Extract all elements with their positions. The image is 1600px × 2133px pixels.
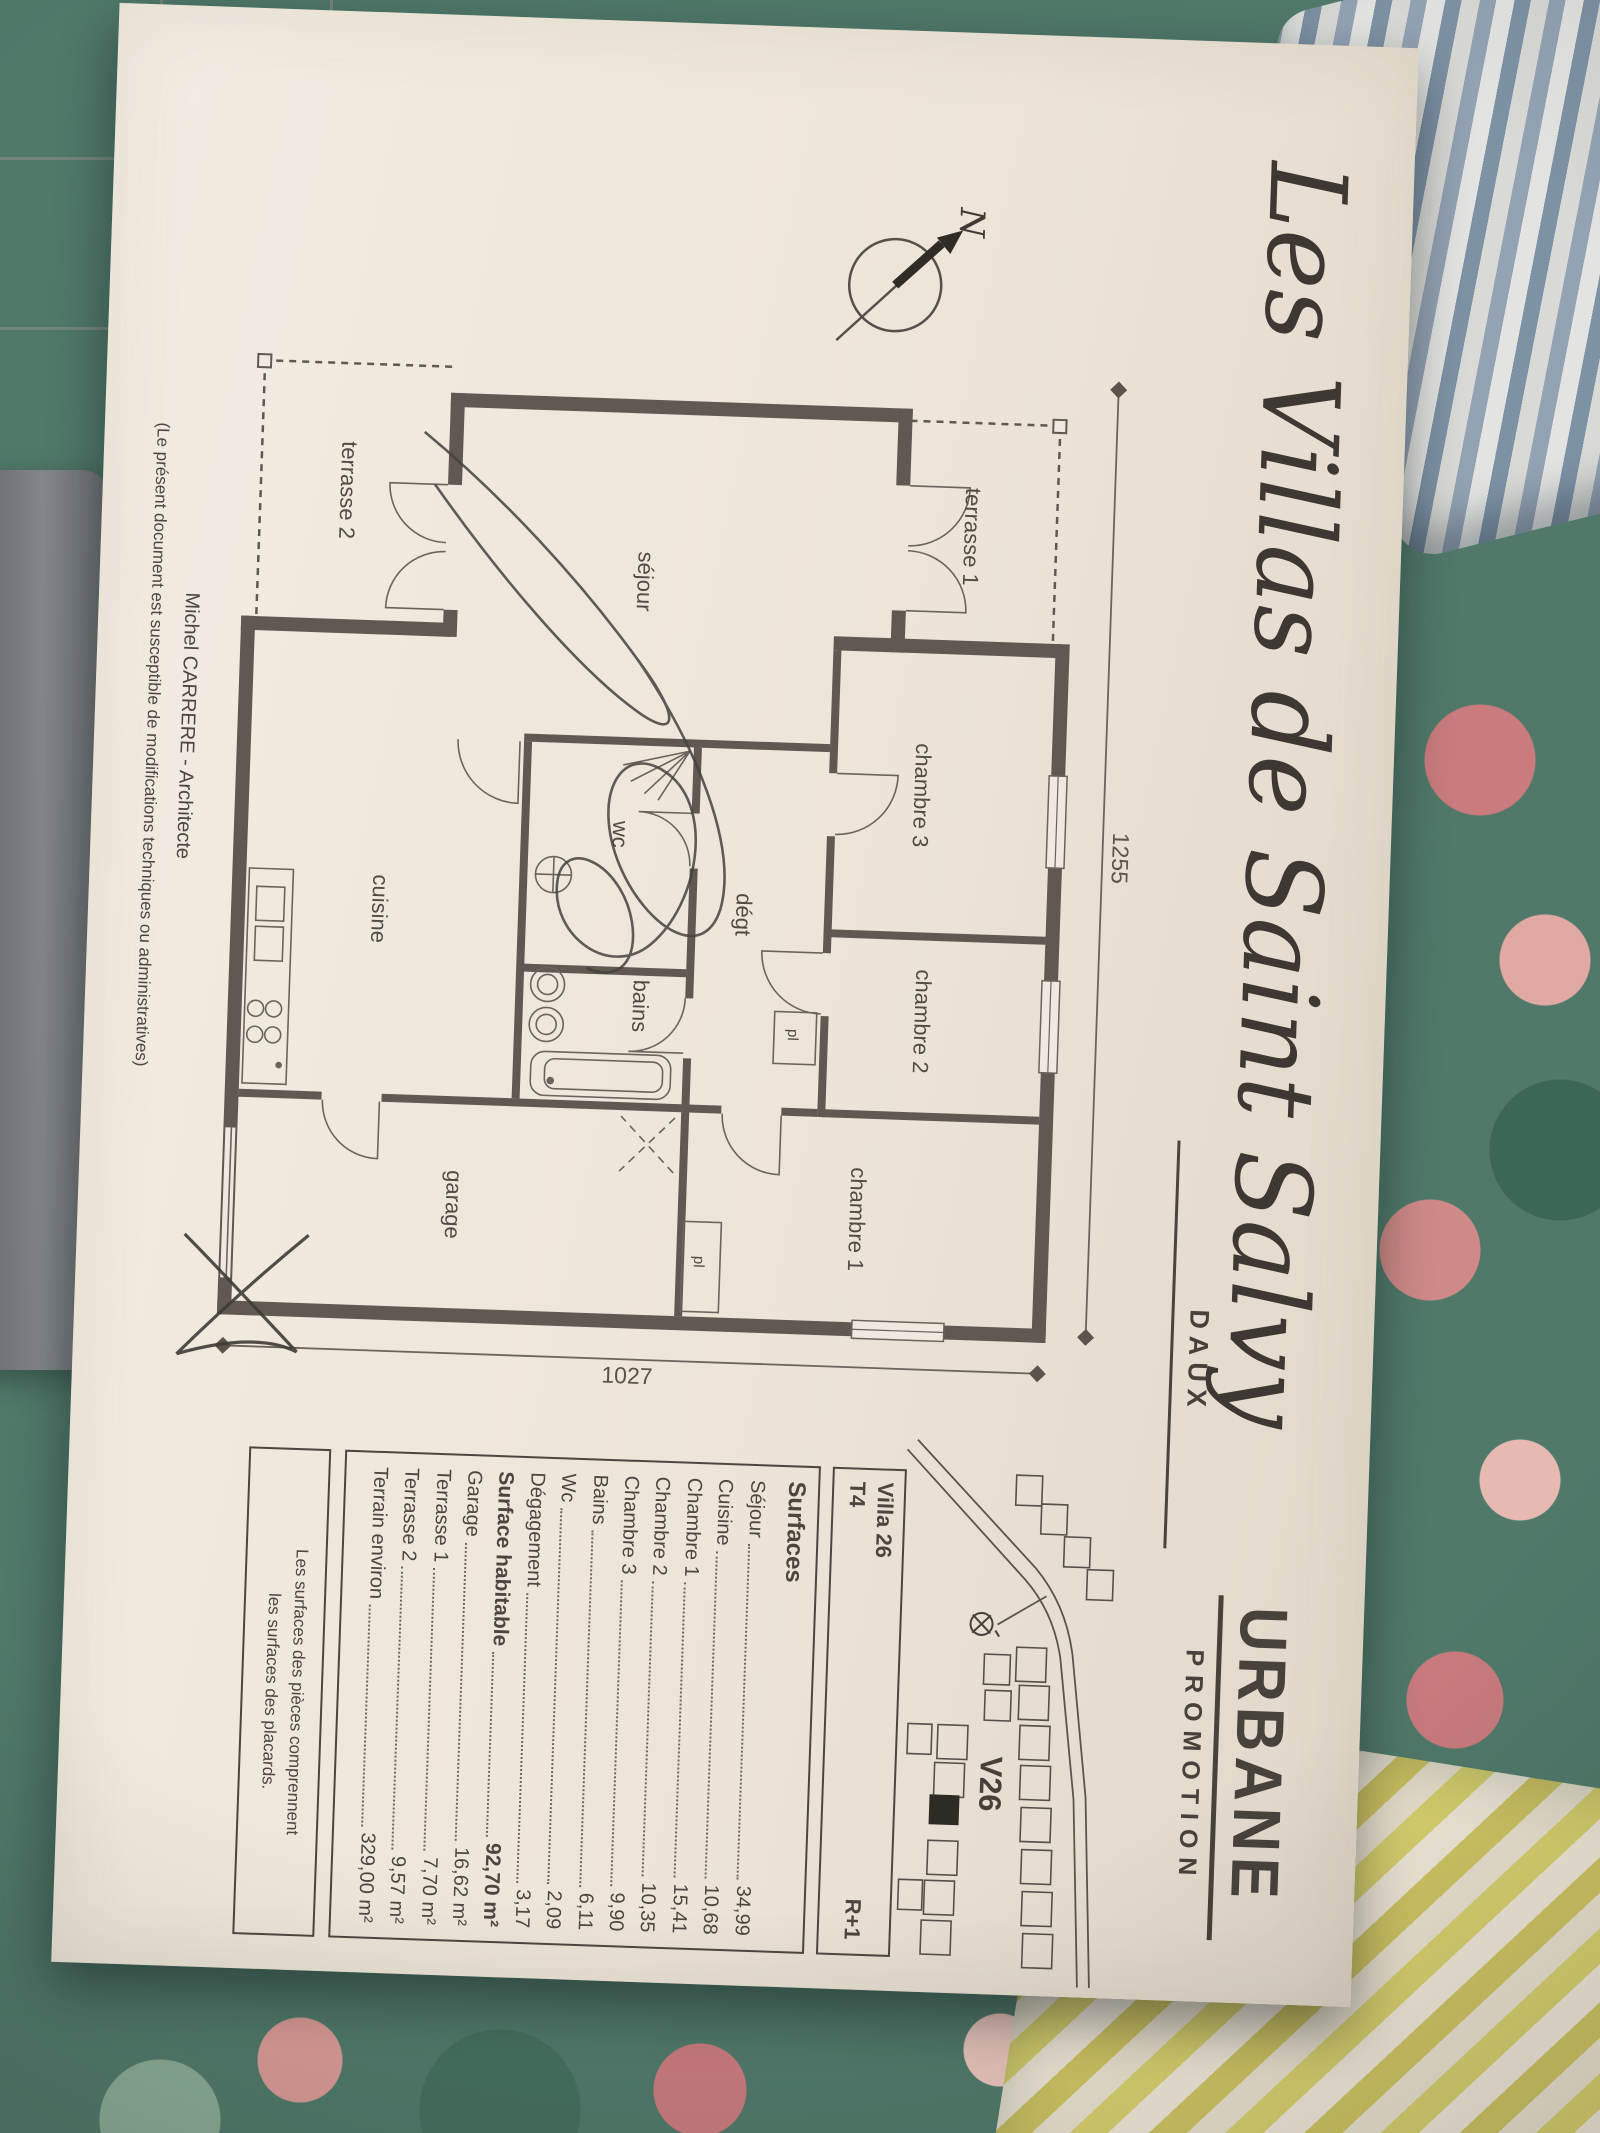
garage-dashes <box>619 1116 675 1173</box>
room-label-garage: garage <box>440 1170 467 1239</box>
north-label: N <box>951 206 992 239</box>
room-label-sejour: séjour <box>632 551 659 612</box>
surfaces-table-rows: Séjour34,99Cuisine10,68Chambre 115,41Cha… <box>353 1466 777 1936</box>
room-label-degagement: dégt <box>730 893 756 937</box>
room-label-terrasse2: terrasse 2 <box>334 441 362 540</box>
villa-26-map-label: V26 <box>972 1756 1009 1812</box>
surfaces-table: Surfaces Séjour34,99Cuisine10,68Chambre … <box>328 1450 821 1954</box>
floor-plan: N 1255 1027 <box>141 155 1184 1439</box>
closet-label: pl <box>690 1256 707 1268</box>
placard-note-box: Les surfaces des pièces comprennent les … <box>232 1446 331 1937</box>
room-label-chambre3: chambre 3 <box>908 743 937 848</box>
compass-icon: N <box>836 202 992 345</box>
plan-document: Les Villas de Saint Salvy DAUX URBANE PR… <box>51 3 1419 2007</box>
map-north-symbol <box>970 1613 1000 1637</box>
header-rule <box>1163 1141 1180 1549</box>
closet-label: pl <box>784 1029 801 1041</box>
dimension-depth: 1027 <box>601 1362 653 1390</box>
terrace-corner-markers <box>257 354 1068 433</box>
villa-level: R+1 <box>838 1898 865 1940</box>
room-label-chambre1: chambre 1 <box>843 1167 872 1272</box>
x-signature-mark <box>176 1231 308 1358</box>
room-label-chambre2: chambre 2 <box>908 969 937 1074</box>
washbasin <box>529 1007 564 1042</box>
villa-26-plot-marker <box>929 1794 960 1825</box>
room-label-terrasse1: terrasse 1 <box>958 488 986 587</box>
site-plots <box>896 1471 1117 1970</box>
room-labels: terrasse 1 terrasse 2 séjour chambre 3 c… <box>309 441 987 1277</box>
city-label: DAUX <box>1180 1309 1215 1415</box>
corner-spray-lines <box>622 749 690 801</box>
photo-scene: Les Villas de Saint Salvy DAUX URBANE PR… <box>0 0 1600 2133</box>
logo-promotion-text: PROMOTION <box>1170 1594 1211 1940</box>
plan-document-paper: Les Villas de Saint Salvy DAUX URBANE PR… <box>51 3 1419 2007</box>
room-label-bains: bains <box>627 979 654 1032</box>
dimension-width: 1255 <box>1106 832 1134 884</box>
urbane-promotion-logo: URBANE PROMOTION <box>1170 1594 1303 1943</box>
logo-urbane-text: URBANE <box>1215 1595 1303 1915</box>
kitchen-counter <box>242 868 293 1084</box>
room-label-cuisine: cuisine <box>366 874 393 943</box>
site-location-map: V26 <box>879 1426 1148 1994</box>
document-title: Les Villas de Saint Salvy <box>1211 160 1370 1164</box>
